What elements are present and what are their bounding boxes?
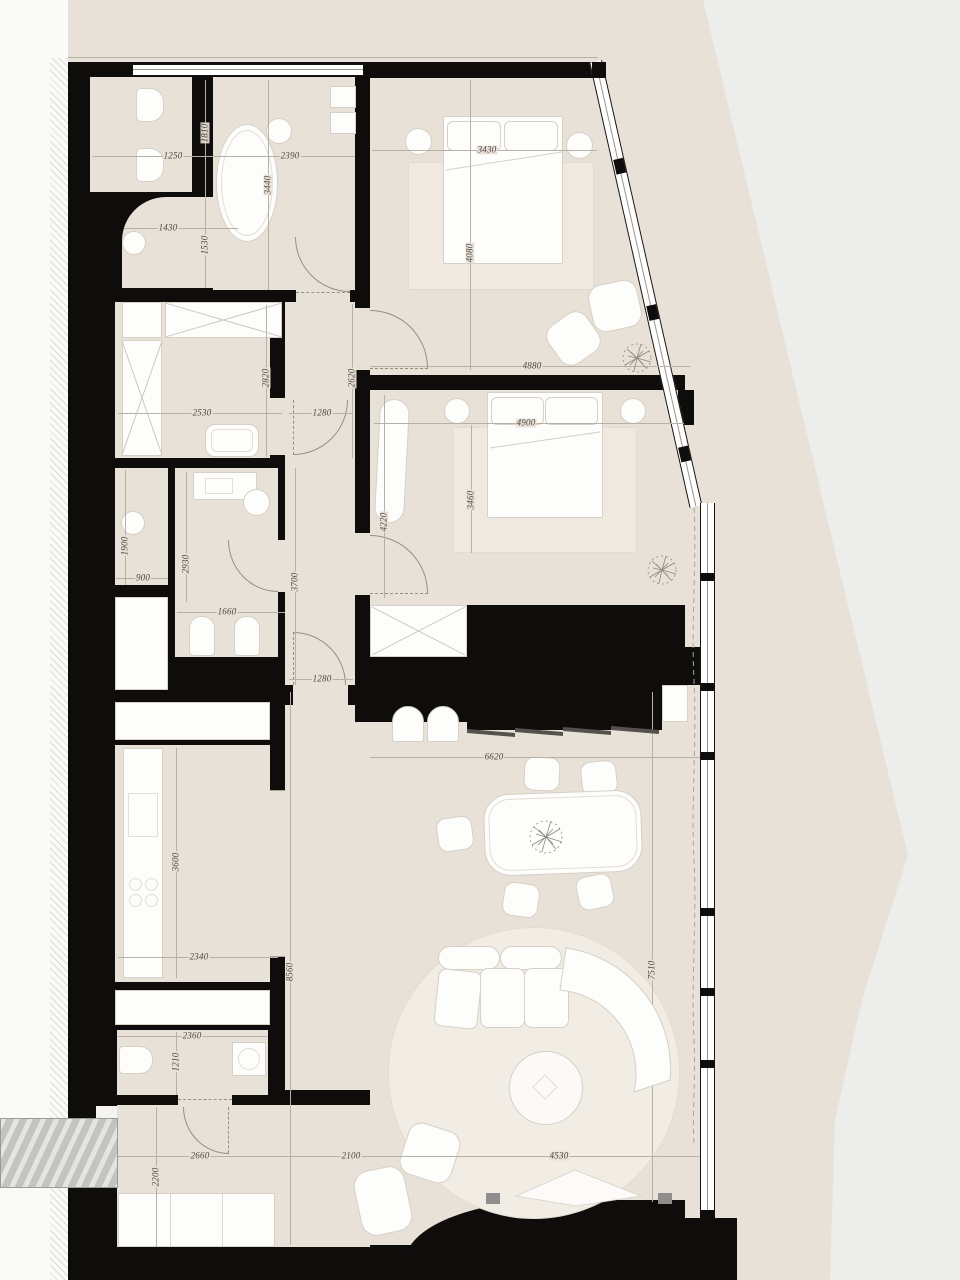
dim-4080: 4080 [466, 243, 475, 264]
wall-bottom-right [685, 1218, 737, 1280]
dining-table-inner [488, 794, 638, 871]
toilet [136, 88, 164, 122]
nightstand [444, 398, 470, 424]
pillow [545, 397, 598, 425]
kitchen-tall-cabinet [115, 702, 270, 740]
dim-2530: 2530 [192, 409, 213, 418]
door-opening-bedroom-1 [355, 308, 370, 370]
hall-wardrobe-divider [170, 1194, 171, 1246]
wardrobe-hanging [165, 302, 282, 338]
dim-1900: 1900 [121, 536, 130, 557]
entry-landing [0, 1118, 118, 1188]
closet-cabinet [122, 302, 162, 338]
hall-wardrobe [118, 1193, 275, 1247]
door-opening-bathroom-2 [278, 540, 285, 592]
dim-1810: 1810 [201, 123, 210, 144]
dim-8560: 8560 [286, 962, 295, 983]
bar-stool-arch [427, 706, 459, 742]
window-end-cap [700, 1210, 715, 1220]
kitchen-counter [123, 748, 163, 978]
door-opening-closet [270, 398, 285, 455]
dim-4880: 4880 [522, 362, 543, 371]
window-mullion [701, 1060, 714, 1068]
dim-1430: 1430 [158, 224, 179, 233]
washbasin [330, 112, 356, 134]
dim-line [125, 470, 126, 585]
door-leaf-bedroom-1 [370, 368, 428, 369]
closet-ottoman-inner [211, 429, 253, 452]
dim-6620: 6620 [484, 753, 505, 762]
vanity-stool [243, 489, 270, 516]
entry-column [658, 1193, 672, 1204]
door-leaf-closet [293, 400, 294, 455]
washbasin [330, 86, 356, 108]
toilet [119, 1046, 153, 1074]
door-leaf-bedroom-2 [370, 593, 428, 594]
sliding-door-wc-guest [178, 1099, 232, 1100]
dining-chair [435, 815, 475, 854]
dim-4530: 4530 [549, 1152, 570, 1161]
sofa-back-cushion [500, 946, 562, 970]
dim-1250: 1250 [163, 152, 184, 161]
dim-1280-a: 1280 [312, 409, 333, 418]
dim-1210: 1210 [172, 1052, 181, 1073]
dim-line [92, 156, 355, 157]
toilet [189, 616, 215, 656]
kitchen-pass-through [270, 790, 285, 957]
dim-1280-b: 1280 [312, 675, 333, 684]
dim-line [470, 80, 471, 370]
door-opening-corridor-living [293, 685, 348, 705]
window-east-vertical [700, 503, 715, 1218]
dim-line [384, 395, 385, 598]
door-opening-bedroom-2 [355, 533, 370, 595]
dim-2660: 2660 [190, 1152, 211, 1161]
sofa-seat [524, 968, 569, 1028]
door-leaf-corridor [293, 632, 294, 685]
floor-plan-canvas: 1810 1250 2390 3440 1430 1530 3430 4080 … [0, 0, 960, 1280]
dim-2390: 2390 [280, 152, 301, 161]
dim-line [124, 228, 238, 229]
dim-1530: 1530 [201, 235, 210, 256]
dim-3460: 3460 [467, 490, 476, 511]
sofa-back-cushion [438, 946, 500, 970]
kitchen-sink [128, 793, 158, 837]
window-mullion [701, 683, 714, 691]
dim-3440: 3440 [264, 175, 273, 196]
wall-media-c [467, 685, 662, 730]
cooktop-burner [129, 894, 142, 907]
cooktop-burner [129, 878, 142, 891]
dim-line [186, 472, 187, 602]
dim-7510: 7510 [648, 960, 657, 981]
kitchen-lower-cabinet [115, 990, 270, 1025]
wall-bedroom-divider [370, 375, 685, 390]
pillow [504, 121, 558, 151]
wardrobe-hanging-tall [122, 340, 162, 456]
bidet [136, 148, 164, 182]
dim-2360: 2360 [182, 1032, 203, 1041]
shaft-cabinet [115, 597, 168, 690]
washbasin-bowl [238, 1048, 260, 1070]
cooktop-burner [145, 878, 158, 891]
dim-2200: 2200 [152, 1167, 161, 1188]
bar-stool-arch [392, 706, 424, 742]
dim-2620: 2620 [348, 368, 357, 389]
wardrobe-hanging [370, 605, 467, 657]
wall-media-a [467, 605, 685, 647]
window-mullion [701, 988, 714, 996]
dim-3430: 3430 [477, 146, 498, 155]
dim-line [205, 80, 206, 288]
wall-hall-living-stub [285, 1090, 370, 1105]
nightstand [620, 398, 646, 424]
dim-900: 900 [135, 574, 151, 583]
sofa-seat [480, 968, 525, 1028]
dining-chair [523, 756, 561, 792]
entry-column [486, 1193, 500, 1204]
bidet [234, 616, 260, 656]
dim-3600: 3600 [172, 852, 181, 873]
dim-2930: 2930 [182, 554, 191, 575]
site-boundary-hatch [50, 58, 68, 1280]
dim-2820: 2820 [262, 368, 271, 389]
vanity-basin [205, 478, 233, 494]
dim-1660: 1660 [217, 608, 238, 617]
media-niche [662, 685, 688, 722]
wall-media-a2 [467, 647, 700, 685]
dim-2340: 2340 [189, 953, 210, 962]
door-leaf-entrance [228, 1107, 229, 1153]
window-mullion [701, 573, 714, 581]
sofa-seat [433, 968, 483, 1030]
dim-4900: 4900 [516, 419, 537, 428]
shower-head [122, 231, 146, 255]
dining-chair [501, 881, 541, 920]
window-mullion [701, 908, 714, 916]
door-opening-wc-guest [178, 1095, 232, 1105]
wall-bottom-left [285, 1245, 420, 1280]
side-table [266, 118, 292, 144]
nightstand [566, 132, 593, 159]
wall-top-outer-line [68, 57, 598, 58]
dim-line [370, 757, 700, 758]
door-leaf-bath [296, 292, 350, 293]
dim-line [652, 692, 653, 1202]
window-mullion [701, 752, 714, 760]
dim-4220: 4220 [380, 512, 389, 533]
dim-3700: 3700 [291, 572, 300, 593]
window-start-cap [592, 62, 606, 78]
window-top [133, 64, 363, 76]
hall-wardrobe-divider [222, 1194, 223, 1246]
dim-2100: 2100 [341, 1152, 362, 1161]
cooktop-burner [145, 894, 158, 907]
